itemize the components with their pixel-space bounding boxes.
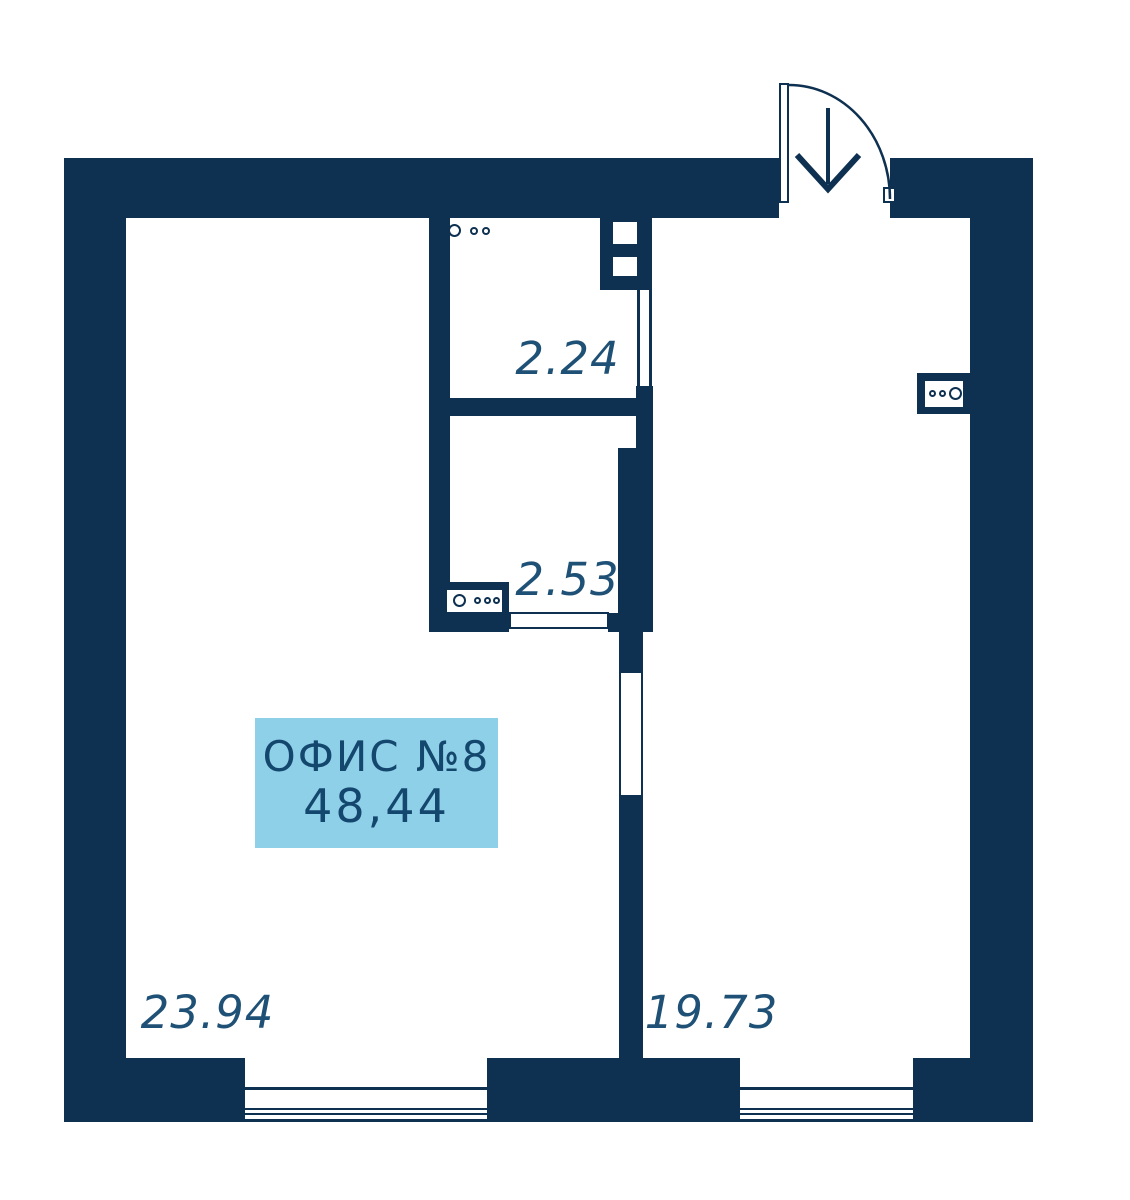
window-glazing-line xyxy=(245,1119,487,1122)
window-glazing-line xyxy=(245,1108,487,1110)
window-frame-line xyxy=(740,1087,913,1090)
door-opening-253 xyxy=(509,612,609,629)
sensor-dot-icon xyxy=(482,227,490,235)
sensor-circle-icon xyxy=(448,224,461,237)
wall-left xyxy=(64,158,126,1122)
meter-dot-icon xyxy=(939,390,946,397)
meter-dial-icon xyxy=(453,594,466,607)
vent-shaft-hole xyxy=(613,257,637,276)
window-left xyxy=(245,1058,487,1122)
window-glazing-line xyxy=(740,1108,913,1110)
meter-dot-icon xyxy=(493,597,500,604)
wall-bottom-a xyxy=(64,1058,245,1122)
wall-wetzone-right-a xyxy=(636,386,653,448)
office-title-box: ОФИС №8 48,44 xyxy=(255,718,498,848)
room-area-label: 2.24 xyxy=(505,332,630,385)
meter-dot-icon xyxy=(484,597,491,604)
meter-block xyxy=(430,582,509,632)
floor-plan: ОФИС №8 48,44 2.24 2.53 23.94 19.73 xyxy=(0,0,1130,1200)
wall-partition-top xyxy=(619,632,643,673)
vent-shaft xyxy=(600,218,652,290)
wall-bottom-b xyxy=(487,1058,740,1122)
meter-dot-icon xyxy=(929,390,936,397)
meter-block-right xyxy=(917,373,970,414)
electric-meter-icon xyxy=(447,590,502,612)
window-glazing-line xyxy=(740,1119,913,1122)
wall-wetzone-divider xyxy=(429,398,653,416)
door-swing-arc-icon xyxy=(789,85,890,199)
thin-partition xyxy=(637,290,652,386)
office-total-area: 48,44 xyxy=(255,780,498,832)
wall-253-bottom-right xyxy=(608,613,653,632)
meter-dot-icon xyxy=(474,597,481,604)
room-area-label: 23.94 xyxy=(130,986,285,1039)
wall-right xyxy=(970,158,1033,1122)
electric-meter-icon xyxy=(925,381,963,407)
wall-bottom-c xyxy=(913,1058,1033,1122)
window-glazing-line xyxy=(740,1113,913,1115)
window-frame-line xyxy=(245,1087,487,1090)
door-opening-partition xyxy=(619,673,643,795)
window-right xyxy=(740,1058,913,1122)
window-glazing-line xyxy=(245,1113,487,1115)
door-swing-and-arrow xyxy=(770,70,910,210)
sensor-dot-icon xyxy=(470,227,478,235)
vent-shaft-hole xyxy=(613,222,637,244)
office-title: ОФИС №8 xyxy=(255,734,498,780)
meter-dial-icon xyxy=(949,387,962,400)
room-area-label: 19.73 xyxy=(634,986,789,1039)
room-area-label: 2.53 xyxy=(505,553,630,606)
wall-wetzone-left xyxy=(429,218,450,632)
wall-top-left xyxy=(64,158,779,218)
